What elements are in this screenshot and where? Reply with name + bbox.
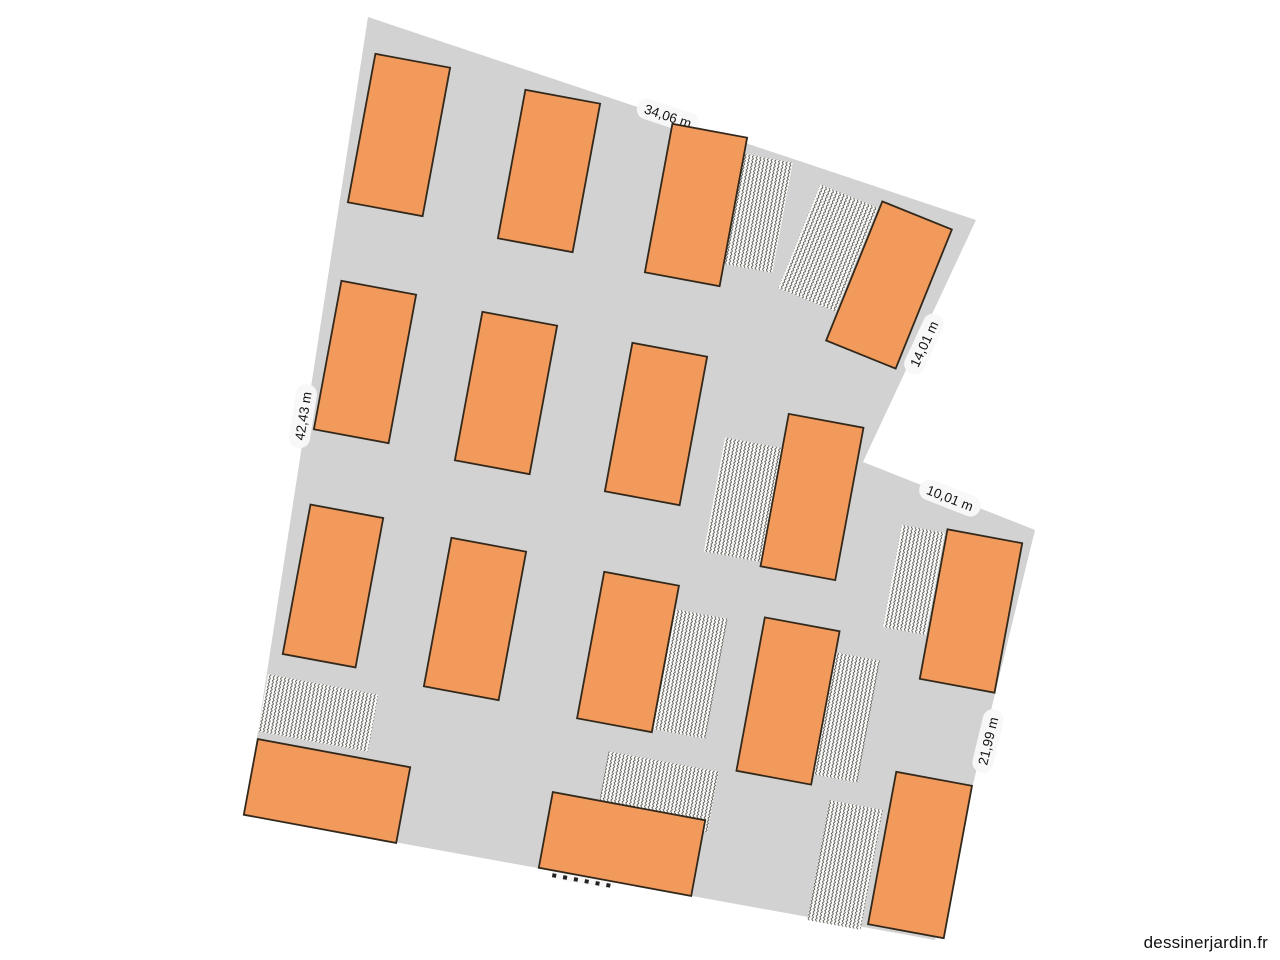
watermark: dessinerjardin.fr [1144,933,1268,953]
garden-plan: 34,06 m14,01 m42,43 m10,01 m21,99 m [0,0,1280,960]
design-canvas: 34,06 m14,01 m42,43 m10,01 m21,99 m dess… [0,0,1280,960]
